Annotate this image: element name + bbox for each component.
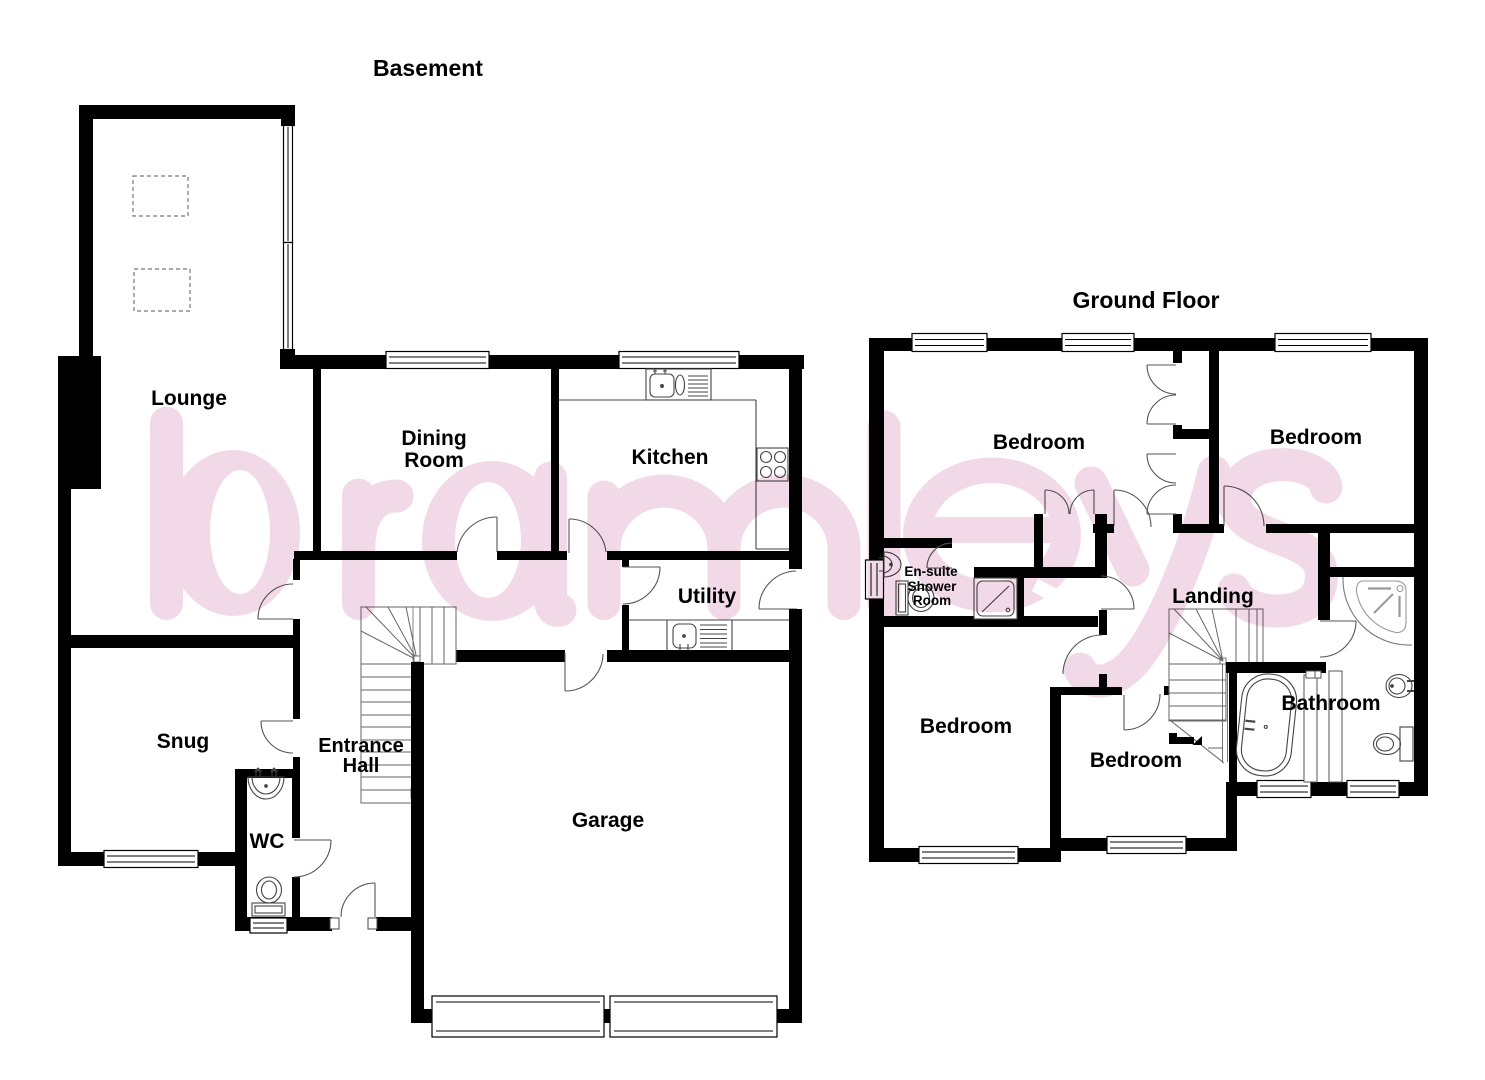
svg-text:Bedroom: Bedroom bbox=[993, 431, 1085, 454]
svg-text:Ground Floor: Ground Floor bbox=[1073, 287, 1220, 313]
svg-text:Entrance: Entrance bbox=[318, 735, 404, 757]
svg-text:Bathroom: Bathroom bbox=[1281, 692, 1380, 715]
svg-text:Garage: Garage bbox=[572, 809, 644, 832]
svg-text:Bedroom: Bedroom bbox=[920, 715, 1012, 738]
svg-text:Snug: Snug bbox=[157, 730, 210, 753]
svg-text:Hall: Hall bbox=[343, 755, 380, 777]
svg-text:Lounge: Lounge bbox=[151, 387, 227, 410]
svg-text:Dining: Dining bbox=[401, 427, 466, 450]
svg-text:Room: Room bbox=[404, 449, 464, 472]
svg-text:Basement: Basement bbox=[373, 55, 483, 81]
svg-text:Bedroom: Bedroom bbox=[1090, 749, 1182, 772]
svg-text:Bedroom: Bedroom bbox=[1270, 426, 1362, 449]
svg-text:WC: WC bbox=[250, 830, 285, 853]
svg-text:Kitchen: Kitchen bbox=[631, 446, 708, 469]
